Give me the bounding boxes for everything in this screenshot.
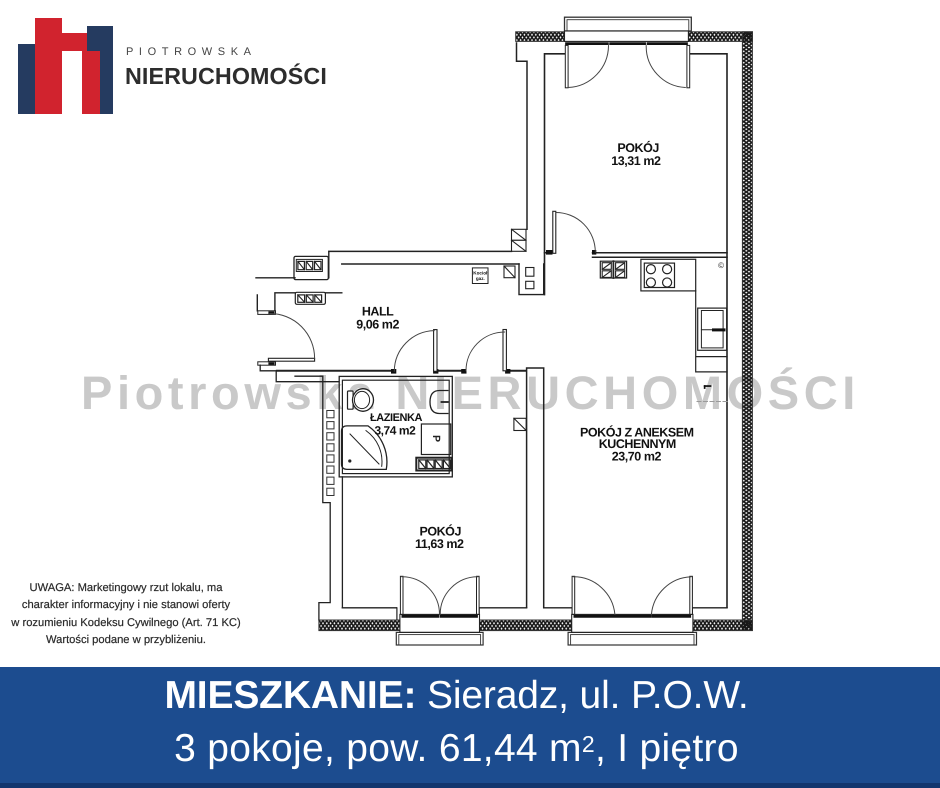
- svg-text:©: ©: [718, 261, 724, 270]
- svg-text:23,70 m2: 23,70 m2: [612, 450, 662, 464]
- svg-text:Kocioł: Kocioł: [473, 271, 488, 276]
- svg-text:9,06 m2: 9,06 m2: [356, 317, 399, 331]
- svg-text:3,74 m2: 3,74 m2: [374, 423, 416, 437]
- svg-text:P: P: [430, 435, 442, 442]
- svg-text:11,63 m2: 11,63 m2: [415, 537, 464, 551]
- svg-text:POKÓJ: POKÓJ: [617, 140, 659, 155]
- svg-text:ŁAZIENKA: ŁAZIENKA: [370, 412, 423, 424]
- svg-text:gaz.: gaz.: [476, 276, 485, 281]
- svg-text:13,31 m2: 13,31 m2: [611, 154, 661, 168]
